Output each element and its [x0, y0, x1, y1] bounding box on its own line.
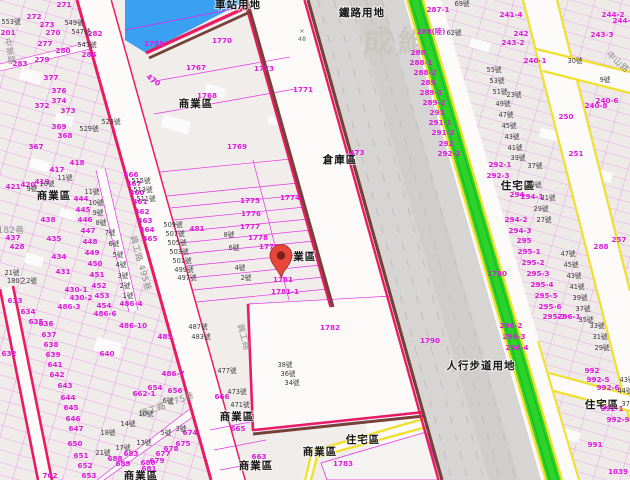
- map-label: 10號: [40, 179, 55, 188]
- map-label: 33號: [527, 180, 542, 189]
- map-label: 29號: [534, 204, 549, 213]
- map-label: 464: [139, 225, 154, 234]
- map-label: 292: [438, 139, 453, 148]
- map-label: 651: [73, 451, 88, 460]
- map-label: 242: [513, 29, 528, 38]
- map-label: 1774: [280, 193, 300, 202]
- map-label: 44號: [618, 386, 630, 395]
- map-label: 497號: [177, 273, 197, 282]
- map-label: 678: [163, 444, 178, 453]
- map-label: 499號: [174, 265, 194, 274]
- map-label: 1769: [227, 142, 247, 151]
- map-label: 633: [7, 296, 22, 305]
- map-label: 291-2: [432, 128, 455, 137]
- map-label: 7號: [105, 228, 116, 237]
- map-label: 643: [57, 381, 72, 390]
- map-label: 637: [41, 330, 56, 339]
- map-label: 295-4: [531, 280, 554, 289]
- map-label: 650: [67, 439, 82, 448]
- map-label: 702: [42, 471, 57, 480]
- map-label: 291: [429, 108, 444, 117]
- map-label: 372: [34, 101, 49, 110]
- map-label: 288: [410, 48, 425, 57]
- map-label: 53號: [490, 76, 505, 85]
- map-label: 11號: [85, 187, 100, 196]
- map-label: 23號: [507, 90, 522, 99]
- map-label: 367: [28, 142, 43, 151]
- map-label: 30號: [568, 56, 583, 65]
- map-label: 418: [69, 158, 84, 167]
- map-label: 9號: [27, 184, 38, 193]
- map-label: 10號: [139, 409, 154, 418]
- map-label: 641: [47, 360, 62, 369]
- map-label: 11號: [58, 173, 73, 182]
- map-label: 296-4: [506, 343, 529, 352]
- map-label: 640: [99, 349, 114, 358]
- map-label: 10號: [89, 198, 104, 207]
- map-label: 543號: [77, 40, 97, 49]
- map-label: 547號: [71, 27, 91, 36]
- map-label: 289-2: [423, 98, 446, 107]
- map-label: 商業區: [303, 445, 338, 458]
- map-label: 689: [115, 459, 130, 468]
- map-label: 240-1: [524, 56, 547, 65]
- map-label: 201: [0, 28, 15, 37]
- map-label: 296-2: [500, 321, 523, 330]
- map-label: 4號: [235, 263, 246, 272]
- map-label: 288: [593, 242, 608, 251]
- map-label: 商業區: [37, 189, 72, 202]
- map-label: 374: [51, 96, 66, 105]
- map-label: 295-2: [522, 258, 545, 267]
- map-label: 277: [37, 39, 52, 48]
- map-label: 243-2: [502, 38, 525, 47]
- map-label: 鐵路用地: [339, 6, 385, 19]
- map-label: 992: [584, 366, 599, 375]
- map-label: 486-3: [58, 302, 81, 311]
- map-label: 283: [12, 59, 27, 68]
- map-label: 250: [558, 112, 573, 121]
- map-label: 41號: [570, 282, 585, 291]
- map-label: 3號: [118, 271, 129, 280]
- map-canvas[interactable]: 成維: [0, 0, 630, 480]
- map-label: 1790: [420, 336, 440, 345]
- map-label: 人行步道用地: [447, 359, 516, 372]
- map-label: 27號: [537, 215, 552, 224]
- map-label: 645: [63, 403, 78, 412]
- map-label: 653: [81, 471, 96, 480]
- map-label: 486-10: [119, 321, 147, 330]
- map-label: 2號: [241, 273, 252, 282]
- map-label: 4號: [116, 260, 127, 269]
- map-label: 1767: [186, 63, 206, 72]
- map-label: 8號: [96, 218, 107, 227]
- map-label: 486-7: [162, 369, 185, 378]
- map-label: 451: [89, 270, 104, 279]
- map-label: 487號: [188, 322, 208, 331]
- map-label: 991: [587, 440, 602, 449]
- map-label: 462: [134, 207, 149, 216]
- map-label: 180之2號: [7, 276, 37, 285]
- map-label: 車站用地: [215, 0, 261, 11]
- map-label: 434: [51, 252, 66, 261]
- map-label: 296-3: [503, 332, 526, 341]
- map-label: 287-1: [427, 5, 450, 14]
- map-label: 3號: [176, 424, 187, 433]
- map-label: 553號: [1, 17, 21, 26]
- map-label: 288-2: [414, 68, 437, 77]
- map-label: 663: [251, 452, 266, 461]
- map-label: 507號: [165, 229, 185, 238]
- map-label: 295-1: [518, 247, 541, 256]
- map-label: 486-4: [120, 299, 143, 308]
- map-label: 295: [516, 236, 531, 245]
- map-label: 45號: [502, 121, 517, 130]
- map-label: 428: [9, 242, 24, 251]
- map-label: 45號: [564, 260, 579, 269]
- map-label: 1039: [608, 467, 628, 476]
- map-label: 368: [57, 131, 72, 140]
- map-label: 295-5: [535, 291, 558, 300]
- map-label: 511號: [136, 194, 156, 203]
- map-label: 1773: [254, 64, 274, 73]
- map-label: 2號: [120, 281, 131, 290]
- map-label: ×: [299, 27, 304, 35]
- map-label: 288(陸): [417, 27, 446, 36]
- map-label: 529號: [79, 124, 99, 133]
- map-label: 294-2: [505, 215, 528, 224]
- map-label: 646: [65, 414, 80, 423]
- map-label: 1777: [240, 222, 260, 231]
- map-label: 1781: [273, 275, 293, 284]
- map-label: 9號: [600, 75, 611, 84]
- map-label: 376: [51, 86, 66, 95]
- map-label: 6號: [229, 243, 240, 252]
- map-label: 501號: [172, 256, 192, 265]
- map-label: 417: [49, 165, 64, 174]
- map-label: 647: [68, 424, 83, 433]
- map-label: 438: [40, 215, 55, 224]
- map-label: 271: [56, 0, 71, 9]
- map-label: 642: [49, 370, 64, 379]
- map-label: 473: [349, 148, 364, 157]
- map-label: 505號: [167, 238, 187, 247]
- map-label: 289-1: [420, 88, 443, 97]
- map-label: 481: [189, 224, 204, 233]
- map-label: 18號: [101, 428, 116, 437]
- map-label: 523號: [101, 117, 121, 126]
- map-label: 294-3: [509, 226, 532, 235]
- map-label: 448: [82, 237, 97, 246]
- cadastral-map[interactable]: 成維: [0, 0, 630, 480]
- map-label: 373: [60, 106, 75, 115]
- map-label: 662-1: [133, 389, 156, 398]
- map-label: 1790: [487, 269, 507, 278]
- map-label: 5號: [161, 428, 172, 437]
- map-label: 5號: [113, 250, 124, 259]
- map-label: 48: [298, 35, 306, 43]
- map-label: 636: [38, 319, 53, 328]
- map-label: 1778: [248, 233, 268, 242]
- map-label: 289: [420, 78, 435, 87]
- map-label: 43號: [505, 132, 520, 141]
- map-label: 29號: [595, 343, 610, 352]
- map-label: 6號: [163, 396, 174, 405]
- map-label: 377: [43, 73, 58, 82]
- map-label: 665: [230, 424, 245, 433]
- map-label: 69號: [455, 0, 470, 8]
- map-label: 509號: [163, 220, 183, 229]
- map-label: 43號: [567, 271, 582, 280]
- map-label: 446: [77, 215, 92, 224]
- map-label: 38號: [278, 360, 293, 369]
- map-label: 437: [5, 233, 20, 242]
- map-label: 住宅區: [346, 433, 381, 446]
- map-label: 471號: [230, 400, 250, 409]
- map-label: 503號: [169, 247, 189, 256]
- map-label: 37號: [528, 161, 543, 170]
- map-label: 241-4: [500, 10, 523, 19]
- map-label: 452: [91, 281, 106, 290]
- map-label: 477號: [217, 366, 237, 375]
- map-label: 454: [96, 301, 111, 310]
- map-label: 1776: [241, 209, 261, 218]
- map-label: 292-1: [489, 160, 512, 169]
- map-label: 商業區: [220, 410, 255, 423]
- map-label: 656: [167, 386, 182, 395]
- map-label: 549號: [64, 18, 84, 27]
- map-label: 39號: [573, 293, 588, 302]
- map-label: 296-1: [558, 312, 581, 321]
- map-label: 240-6: [596, 96, 619, 105]
- map-label: 1770: [212, 36, 232, 45]
- map-label: 1788: [144, 39, 164, 48]
- map-label: 473號: [227, 387, 247, 396]
- map-label: 288-1: [410, 58, 433, 67]
- map-label: 43號: [620, 375, 630, 384]
- map-label: 21號: [96, 448, 111, 457]
- map-label: 450: [87, 259, 102, 268]
- map-label: 992-1: [601, 404, 624, 413]
- map-label: 8號: [224, 230, 235, 239]
- map-label: 485: [157, 332, 172, 341]
- map-label: 992-9: [607, 415, 630, 424]
- map-label: 37號: [576, 304, 591, 313]
- map-label: 21號: [5, 268, 20, 277]
- map-label: 1783: [333, 459, 353, 468]
- map-label: 49號: [496, 99, 511, 108]
- map-label: 36號: [281, 369, 296, 378]
- map-label: 632: [1, 349, 16, 358]
- map-label: 295-6: [539, 302, 562, 311]
- map-label: 1775: [240, 196, 260, 205]
- map-label: 243-3: [591, 30, 614, 39]
- map-label: 992-6: [597, 383, 620, 392]
- map-label: 17號: [116, 443, 131, 452]
- map-label: 453: [94, 291, 109, 300]
- map-label: 6號: [109, 239, 120, 248]
- map-label: 13號: [137, 438, 152, 447]
- map-label: 431: [55, 267, 70, 276]
- map-label: 634: [20, 307, 35, 316]
- map-label: 244-1: [613, 16, 630, 25]
- map-label: 1782: [320, 323, 340, 332]
- map-label: 644: [60, 393, 75, 402]
- map-label: 295-3: [527, 269, 550, 278]
- map-label: 435: [46, 234, 61, 243]
- map-label: 292-2: [438, 149, 461, 158]
- map-label: 1768: [197, 91, 217, 100]
- map-label: 463: [137, 216, 152, 225]
- map-label: 638: [43, 340, 58, 349]
- map-label: 37號: [622, 399, 630, 408]
- map-label: 47號: [561, 249, 576, 258]
- map-label: 31號: [593, 332, 608, 341]
- map-label: 55號: [487, 65, 502, 74]
- map-label: 465: [142, 234, 157, 243]
- map-label: 639: [45, 350, 60, 359]
- map-label: 291-1: [429, 118, 452, 127]
- map-label: 421: [5, 182, 20, 191]
- map-label: 270: [45, 28, 60, 37]
- map-label: 284: [81, 50, 96, 59]
- map-label: 251: [568, 149, 583, 158]
- map-label: 483號: [191, 332, 211, 341]
- map-label: 1號: [123, 291, 134, 300]
- map-label: 430-2: [70, 293, 93, 302]
- map-label: 681: [141, 464, 156, 473]
- map-label: 280: [55, 46, 70, 55]
- map-label: 369: [51, 122, 66, 131]
- map-label: 1781-1: [271, 287, 299, 296]
- map-label: 39號: [511, 153, 526, 162]
- map-label: 279: [34, 55, 49, 64]
- map-label: 515號: [131, 176, 151, 185]
- map-label: 449: [84, 248, 99, 257]
- map-label: 14號: [121, 419, 136, 428]
- map-label: 47號: [499, 110, 514, 119]
- map-label: 652: [77, 461, 92, 470]
- map-label: 257: [611, 235, 626, 244]
- map-label: 9號: [93, 208, 104, 217]
- map-label: 33號: [590, 321, 605, 330]
- map-label: 62號: [447, 28, 462, 37]
- map-label: 486-6: [94, 309, 117, 318]
- map-label: 34號: [285, 378, 300, 387]
- map-label: 1771: [293, 85, 313, 94]
- map-label: 41號: [508, 143, 523, 152]
- map-label: 447: [80, 226, 95, 235]
- map-label: 31號: [541, 193, 556, 202]
- map-label: 292-3: [487, 171, 510, 180]
- map-label: 513號: [133, 185, 153, 194]
